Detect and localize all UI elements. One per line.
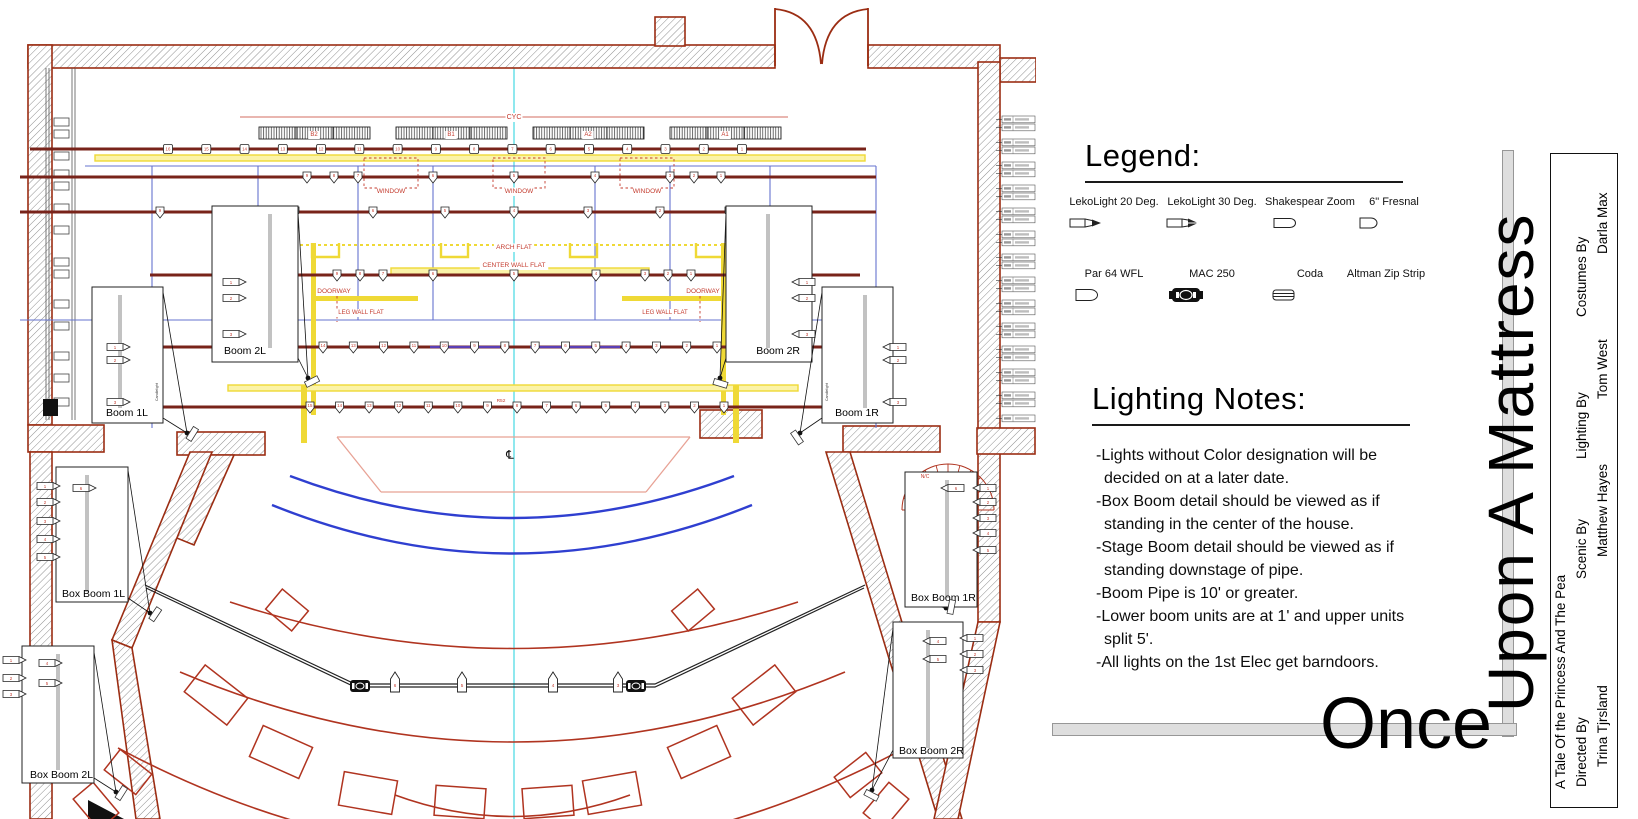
svg-text:4: 4 bbox=[552, 683, 555, 688]
svg-text:12: 12 bbox=[319, 147, 324, 152]
svg-text:13: 13 bbox=[367, 403, 372, 408]
svg-text:16: 16 bbox=[166, 147, 171, 152]
credit-name: Tom West bbox=[1595, 339, 1610, 399]
svg-text:15: 15 bbox=[204, 147, 209, 152]
svg-text:LEG WALL FLAT: LEG WALL FLAT bbox=[642, 310, 688, 316]
boom-label: Boom 2R bbox=[756, 345, 800, 357]
svg-text:12: 12 bbox=[396, 403, 401, 408]
credit-name: Trina Tjrsland bbox=[1595, 685, 1610, 767]
svg-text:13: 13 bbox=[280, 147, 285, 152]
svg-text:5: 5 bbox=[461, 683, 464, 688]
svg-text:Candlelight: Candlelight bbox=[155, 383, 159, 401]
show-title-once: Once bbox=[1320, 688, 1492, 760]
boom-label: Boom 1R bbox=[835, 407, 879, 419]
boom-detail-box: 123CandlelightBoom 1L bbox=[92, 287, 199, 441]
svg-text:A1: A1 bbox=[721, 132, 729, 138]
legend-item: LekoLight 30 Deg. bbox=[1164, 196, 1260, 232]
legend-item: Shakespear Zoom bbox=[1262, 196, 1358, 232]
svg-text:10: 10 bbox=[455, 403, 460, 408]
lighting-note: -Box Boom detail should be viewed as if … bbox=[1096, 490, 1426, 536]
double-door bbox=[775, 8, 868, 66]
svg-text:LEG WALL FLAT: LEG WALL FLAT bbox=[338, 310, 384, 316]
show-subtitle: A Tale Of the Princess And The Pea bbox=[1553, 575, 1568, 789]
svg-text:℄: ℄ bbox=[505, 448, 514, 462]
svg-text:R52: R52 bbox=[497, 398, 506, 404]
svg-text:15: 15 bbox=[308, 403, 313, 408]
svg-text:N/C: N/C bbox=[921, 474, 930, 480]
svg-text:WINDOW: WINDOW bbox=[377, 188, 406, 195]
credit-role: Costumes By bbox=[1574, 237, 1589, 317]
boom-detail-box: 123Boom 2R bbox=[713, 206, 815, 388]
shakespeare-icon bbox=[1262, 214, 1358, 232]
svg-text:Candlelight: Candlelight bbox=[825, 383, 829, 401]
svg-text:CENTER WALL FLAT: CENTER WALL FLAT bbox=[483, 262, 546, 269]
svg-text:13: 13 bbox=[351, 343, 356, 348]
svg-text:11: 11 bbox=[412, 343, 417, 348]
instrument-schedule-strip bbox=[996, 116, 1035, 422]
credit-role: Directed By bbox=[1574, 717, 1589, 787]
svg-text:6: 6 bbox=[394, 683, 397, 688]
legend-item-label: Par 64 WFL bbox=[1066, 268, 1162, 280]
svg-text:10: 10 bbox=[395, 147, 400, 152]
svg-text:DOORWAY: DOORWAY bbox=[317, 288, 351, 295]
boom-label: Boom 2L bbox=[224, 345, 266, 357]
svg-text:14: 14 bbox=[337, 403, 342, 408]
legend-heading: Legend: bbox=[1085, 138, 1403, 183]
svg-text:14: 14 bbox=[321, 343, 326, 348]
legend-item-label: Shakespear Zoom bbox=[1262, 196, 1358, 208]
svg-text:B2: B2 bbox=[310, 132, 318, 138]
credit-role: Lighting By bbox=[1574, 392, 1589, 459]
credit-name: Darla Max bbox=[1595, 192, 1610, 254]
lighting-note: -Boom Pipe is 10' or greater. bbox=[1096, 582, 1426, 605]
svg-text:B1: B1 bbox=[447, 132, 455, 138]
boom-detail-box: 12345Box Boom 2L bbox=[3, 646, 128, 801]
svg-text:WINDOW: WINDOW bbox=[633, 188, 662, 195]
legend-item-label: Altman Zip Strip bbox=[1338, 268, 1434, 280]
svg-text:11: 11 bbox=[426, 403, 431, 408]
boom-label: Box Boom 2L bbox=[30, 769, 93, 781]
lighting-plot-page: CYCWINDOWWINDOWWINDOWARCH FLATCENTER WAL… bbox=[0, 0, 1638, 819]
boom-detail-box: 123Boom 2L bbox=[212, 206, 320, 387]
legend-item: LekoLight 20 Deg. bbox=[1066, 196, 1162, 232]
boom-label: Box Boom 1L bbox=[62, 588, 125, 600]
legend-item: 6" Fresnal bbox=[1346, 196, 1442, 232]
stage-plan-drawing: CYCWINDOWWINDOWWINDOWARCH FLATCENTER WAL… bbox=[0, 0, 1036, 819]
foh-rail: 6543 bbox=[145, 585, 865, 692]
fresnel-icon bbox=[1346, 214, 1442, 232]
svg-text:A2: A2 bbox=[584, 132, 592, 138]
svg-text:14: 14 bbox=[242, 147, 247, 152]
title-block-rotated-text: A Tale Of the Princess And The PeaDirect… bbox=[1553, 158, 1615, 807]
lighting-notes-list: -Lights without Color designation will b… bbox=[1096, 444, 1426, 674]
svg-text:DOORWAY: DOORWAY bbox=[686, 288, 720, 295]
legend-item-label: MAC 250 bbox=[1164, 268, 1260, 280]
svg-text:3: 3 bbox=[617, 683, 620, 688]
lighting-note: -Stage Boom detail should be viewed as i… bbox=[1096, 536, 1426, 582]
credit-name: Matthew Hayes bbox=[1595, 464, 1610, 557]
lighting-note: -Lower boom units are at 1' and upper un… bbox=[1096, 605, 1426, 651]
svg-text:CYC: CYC bbox=[507, 114, 522, 121]
lighting-note: -All lights on the 1st Elec get barndoor… bbox=[1096, 651, 1426, 674]
legend-item: MAC 250 bbox=[1164, 268, 1260, 304]
title-block: A Tale Of the Princess And The PeaDirect… bbox=[1550, 153, 1618, 808]
cyc-strip-lights: B2B1A2A1 bbox=[259, 127, 781, 139]
boom-label: Boom 1L bbox=[106, 407, 148, 419]
lighting-note: -Lights without Color designation will b… bbox=[1096, 444, 1426, 490]
svg-text:ARCH FLAT: ARCH FLAT bbox=[496, 244, 532, 251]
boom-label: Box Boom 1R bbox=[911, 592, 976, 604]
legend-item: Par 64 WFL bbox=[1066, 268, 1162, 304]
legend-item-label: LekoLight 30 Deg. bbox=[1164, 196, 1260, 208]
zipstrip-icon bbox=[1338, 286, 1434, 304]
lighting-notes-heading: Lighting Notes: bbox=[1092, 381, 1410, 426]
svg-text:11: 11 bbox=[357, 147, 362, 152]
svg-text:12: 12 bbox=[381, 343, 386, 348]
leko30-icon bbox=[1164, 214, 1260, 232]
mac250-icon bbox=[1164, 286, 1260, 304]
boom-label: Box Boom 2R bbox=[899, 745, 964, 757]
legend-item: Altman Zip Strip bbox=[1338, 268, 1434, 304]
svg-text:10: 10 bbox=[442, 343, 447, 348]
legend-item-label: 6" Fresnal bbox=[1346, 196, 1442, 208]
show-title-upon-a-mattress: Upon A Mattress bbox=[1481, 140, 1543, 712]
leko20-icon bbox=[1066, 214, 1162, 232]
credit-role: Scenic By bbox=[1574, 519, 1589, 579]
legend-item-label: LekoLight 20 Deg. bbox=[1066, 196, 1162, 208]
par64-icon bbox=[1066, 286, 1162, 304]
svg-text:WINDOW: WINDOW bbox=[505, 188, 534, 195]
